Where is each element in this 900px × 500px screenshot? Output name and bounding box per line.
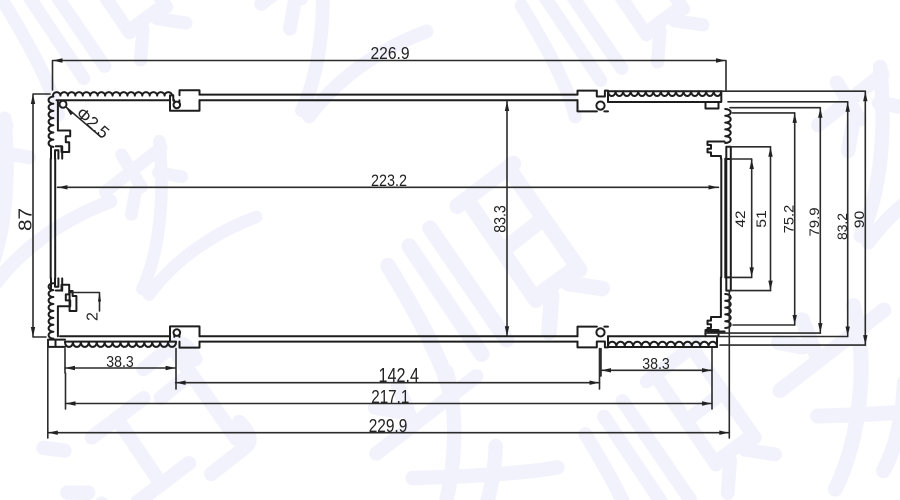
svg-text:79.9: 79.9 [806,207,822,236]
svg-text:42: 42 [732,210,748,227]
svg-text:90: 90 [851,211,867,229]
svg-text:75.2: 75.2 [781,205,797,234]
svg-text:83.3: 83.3 [491,205,510,233]
svg-text:83.2: 83.2 [834,213,850,240]
svg-text:87: 87 [16,208,36,231]
svg-text:223.2: 223.2 [371,171,407,190]
svg-text:229.9: 229.9 [369,415,408,436]
svg-text:38.3: 38.3 [106,354,134,371]
svg-text:217.1: 217.1 [371,386,409,407]
svg-text:38.3: 38.3 [642,356,670,373]
svg-text:226.9: 226.9 [371,43,410,63]
svg-text:2: 2 [85,312,102,321]
svg-text:142.4: 142.4 [379,364,420,387]
svg-text:51: 51 [753,210,769,228]
